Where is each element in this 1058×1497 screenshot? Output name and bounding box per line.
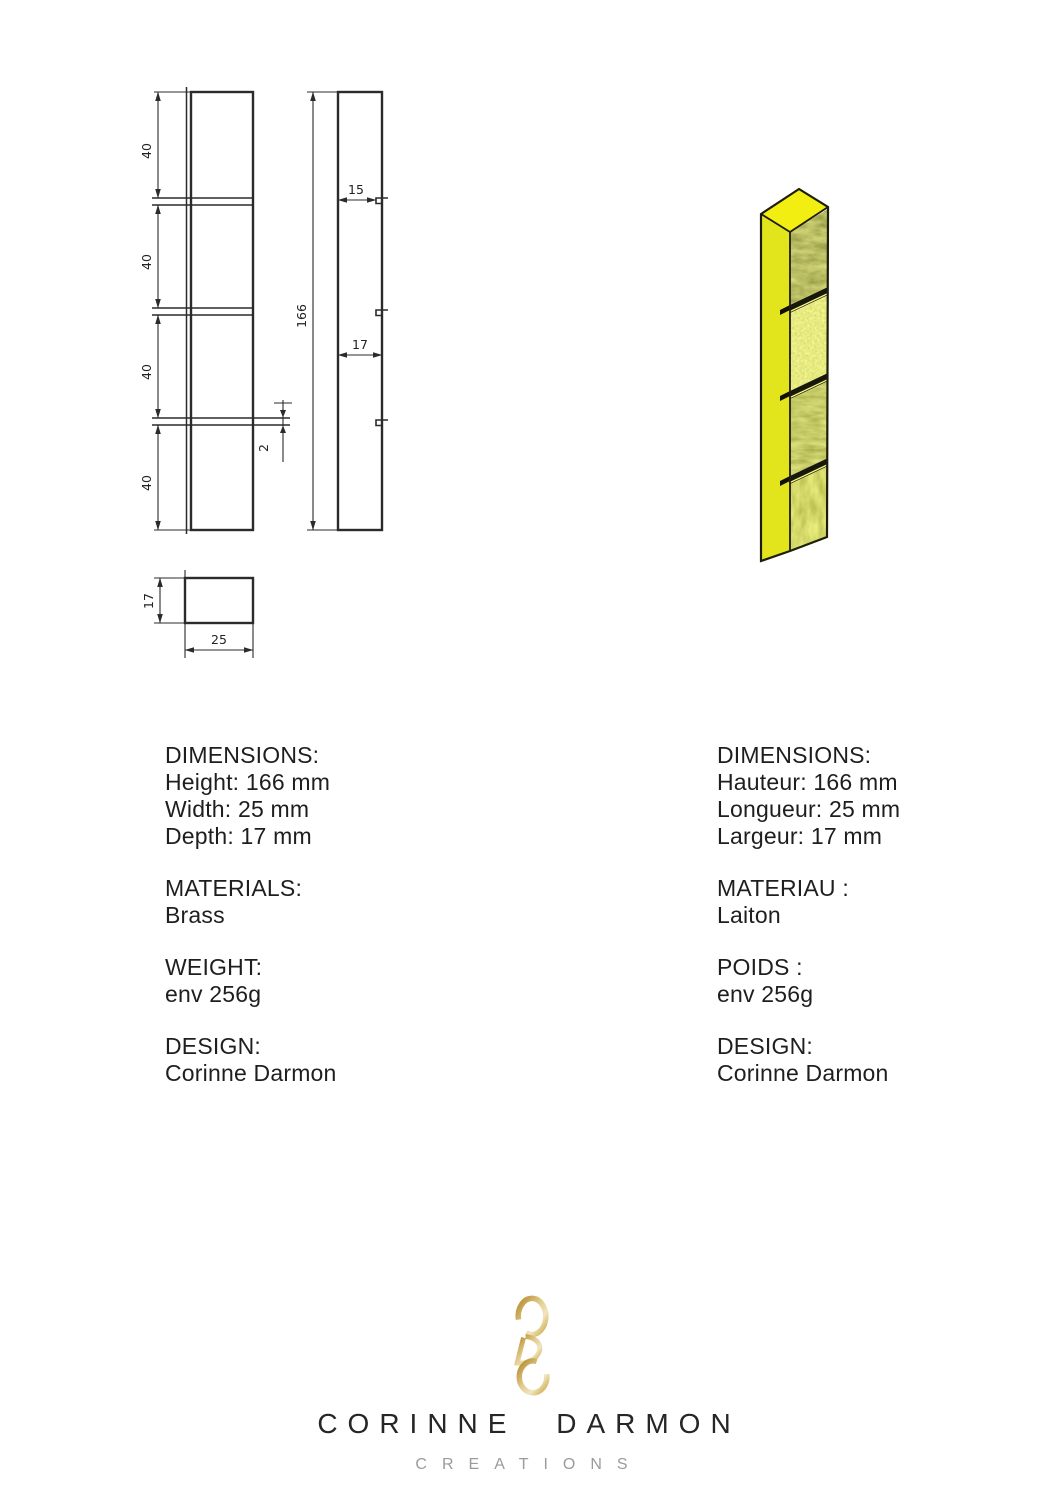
spec-title: MATERIAU : <box>717 875 1037 902</box>
front-view <box>152 87 292 534</box>
dim-label-17-side: 17 <box>352 337 368 352</box>
dim-label-40-1: 40 <box>139 143 154 159</box>
brand-subtitle: CREATIONS <box>0 1456 1058 1474</box>
monogram-letter-c-bottom <box>519 1361 547 1393</box>
spec-title: WEIGHT: <box>165 954 485 981</box>
spec-title: POIDS : <box>717 954 1037 981</box>
spec-line: env 256g <box>717 981 1037 1008</box>
spec-line: Corinne Darmon <box>165 1060 485 1087</box>
monogram-letter-c-top <box>518 1298 546 1334</box>
front-view-dim-labels: 40 40 40 40 2 <box>139 143 271 491</box>
dim-label-40-4: 40 <box>139 475 154 491</box>
technical-drawing: 40 40 40 40 2 166 15 <box>130 75 440 675</box>
side-view <box>307 92 388 530</box>
spec-group-weight-fr: POIDS : env 256g <box>717 954 1037 1008</box>
section-view-outline <box>185 578 253 623</box>
spec-title: DESIGN: <box>165 1033 485 1060</box>
spec-title: DIMENSIONS: <box>165 742 485 769</box>
brand-name: CORINNE DARMON <box>0 1408 1058 1440</box>
spec-line: Largeur: 17 mm <box>717 823 1037 850</box>
dim-label-17-section: 17 <box>141 593 156 609</box>
spec-group-design-en: DESIGN: Corinne Darmon <box>165 1033 485 1087</box>
specs-french: DIMENSIONS: Hauteur: 166 mm Longueur: 25… <box>717 742 1037 1112</box>
spec-line: Corinne Darmon <box>717 1060 1037 1087</box>
spec-line: Hauteur: 166 mm <box>717 769 1037 796</box>
dim-label-166: 166 <box>294 304 309 328</box>
spec-group-dimensions-en: DIMENSIONS: Height: 166 mm Width: 25 mm … <box>165 742 485 850</box>
spec-line: Width: 25 mm <box>165 796 485 823</box>
spec-sheet-page: 40 40 40 40 2 166 15 <box>0 0 1058 1497</box>
groove-dimension <box>274 400 292 462</box>
spec-title: DIMENSIONS: <box>717 742 1037 769</box>
specs-english: DIMENSIONS: Height: 166 mm Width: 25 mm … <box>165 742 485 1112</box>
spec-line: Brass <box>165 902 485 929</box>
spec-group-design-fr: DESIGN: Corinne Darmon <box>717 1033 1037 1087</box>
dim-label-40-2: 40 <box>139 254 154 270</box>
front-view-groove-lines <box>152 198 290 425</box>
spec-line: Longueur: 25 mm <box>717 796 1037 823</box>
brand-monogram-icon <box>499 1291 565 1397</box>
spec-group-dimensions-fr: DIMENSIONS: Hauteur: 166 mm Longueur: 25… <box>717 742 1037 850</box>
spec-group-materials-en: MATERIALS: Brass <box>165 875 485 929</box>
spec-line: Laiton <box>717 902 1037 929</box>
spec-group-materials-fr: MATERIAU : Laiton <box>717 875 1037 929</box>
section-view <box>154 570 253 658</box>
spec-title: DESIGN: <box>717 1033 1037 1060</box>
spec-group-weight-en: WEIGHT: env 256g <box>165 954 485 1008</box>
spec-title: MATERIALS: <box>165 875 485 902</box>
dim-label-15: 15 <box>348 182 364 197</box>
dim-label-40-3: 40 <box>139 364 154 380</box>
dim-label-25: 25 <box>211 632 227 647</box>
render-side-face <box>761 214 790 561</box>
side-view-dim-labels: 166 15 17 <box>294 182 368 352</box>
spec-line: Depth: 17 mm <box>165 823 485 850</box>
front-view-outline <box>191 92 253 530</box>
product-3d-render <box>745 180 845 575</box>
spec-line: Height: 166 mm <box>165 769 485 796</box>
dim-label-groove-2: 2 <box>256 444 271 452</box>
spec-line: env 256g <box>165 981 485 1008</box>
